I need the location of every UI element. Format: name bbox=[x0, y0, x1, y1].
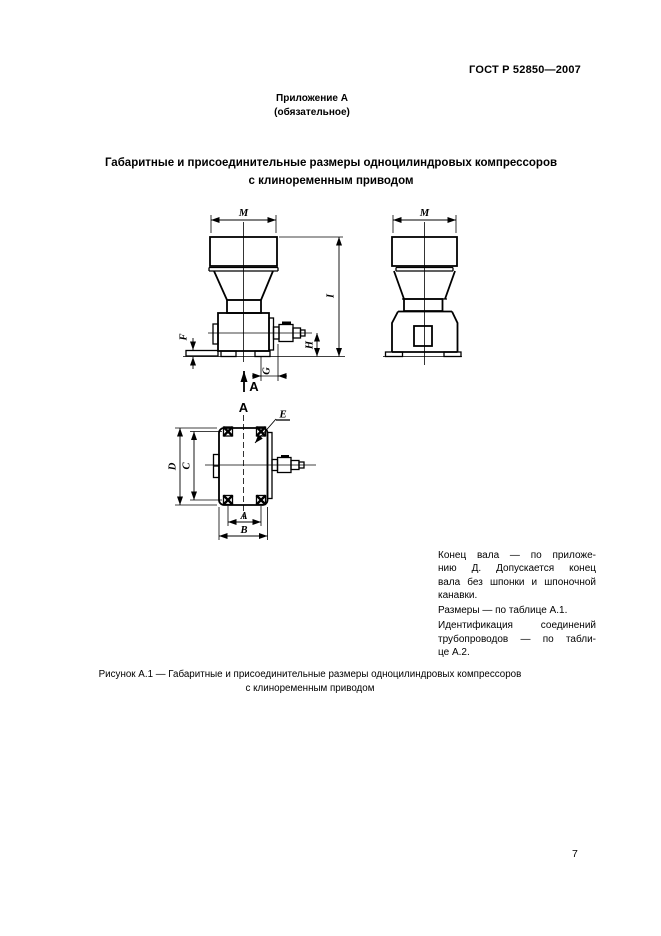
dim-label-f: F bbox=[179, 333, 190, 341]
figure-caption: Рисунок А.1 — Габаритные и присоединител… bbox=[0, 668, 620, 696]
note-line: нию Д. Допускается конец bbox=[438, 562, 596, 575]
note-line: Идентификация соединений bbox=[438, 619, 596, 632]
technical-drawing: M bbox=[0, 200, 661, 545]
shaft-front bbox=[274, 322, 306, 342]
dim-label-g: G bbox=[262, 367, 273, 375]
top-view: А bbox=[168, 400, 317, 540]
view-arrow-label: А bbox=[249, 379, 259, 394]
document-page: ГОСТ Р 52850—2007 Приложение А (обязател… bbox=[0, 0, 661, 936]
dim-label-a: A bbox=[239, 511, 247, 522]
note-line: трубопроводов — по табли- bbox=[438, 633, 596, 646]
dim-label-m-front: M bbox=[238, 208, 249, 219]
figure-heading-line2: с клиноременным приводом bbox=[25, 172, 637, 190]
appendix-subtitle: (обязательное) bbox=[0, 106, 624, 120]
figure-notes: Конец вала — по приложе- нию Д. Допускае… bbox=[438, 549, 596, 659]
dim-label-b: B bbox=[239, 525, 247, 536]
figure-caption-line1: Рисунок А.1 — Габаритные и присоединител… bbox=[0, 668, 620, 682]
figure-caption-line2: с клиноременным приводом bbox=[0, 682, 620, 696]
mounting-hole bbox=[224, 496, 233, 505]
note-line: вала без шпонки и шпоночной bbox=[438, 576, 596, 589]
figure-heading: Габаритные и присоединительные размеры о… bbox=[25, 154, 637, 190]
dim-label-h: H bbox=[305, 340, 316, 350]
note-line: канавки. bbox=[438, 589, 596, 602]
dim-label-e: E bbox=[278, 409, 286, 421]
view-title-label: А bbox=[239, 400, 249, 415]
note-line: Конец вала — по приложе- bbox=[438, 549, 596, 562]
shaft-top bbox=[272, 455, 304, 473]
appendix-heading: Приложение А (обязательное) bbox=[0, 92, 624, 119]
mounting-hole bbox=[257, 496, 266, 505]
figure-heading-line1: Габаритные и присоединительные размеры о… bbox=[25, 154, 637, 172]
dim-label-d: D bbox=[168, 462, 179, 471]
dim-label-i: I bbox=[326, 293, 337, 299]
note-line: Размеры — по таблице А.1. bbox=[438, 604, 596, 617]
page-number: 7 bbox=[572, 848, 578, 860]
dim-label-c: C bbox=[182, 462, 193, 470]
note-line: це А.2. bbox=[438, 646, 596, 659]
standard-code: ГОСТ Р 52850—2007 bbox=[469, 64, 581, 76]
appendix-title: Приложение А bbox=[0, 92, 624, 106]
front-view: M bbox=[179, 208, 346, 394]
dim-label-m-side: M bbox=[419, 208, 430, 219]
side-view: M bbox=[383, 208, 462, 365]
